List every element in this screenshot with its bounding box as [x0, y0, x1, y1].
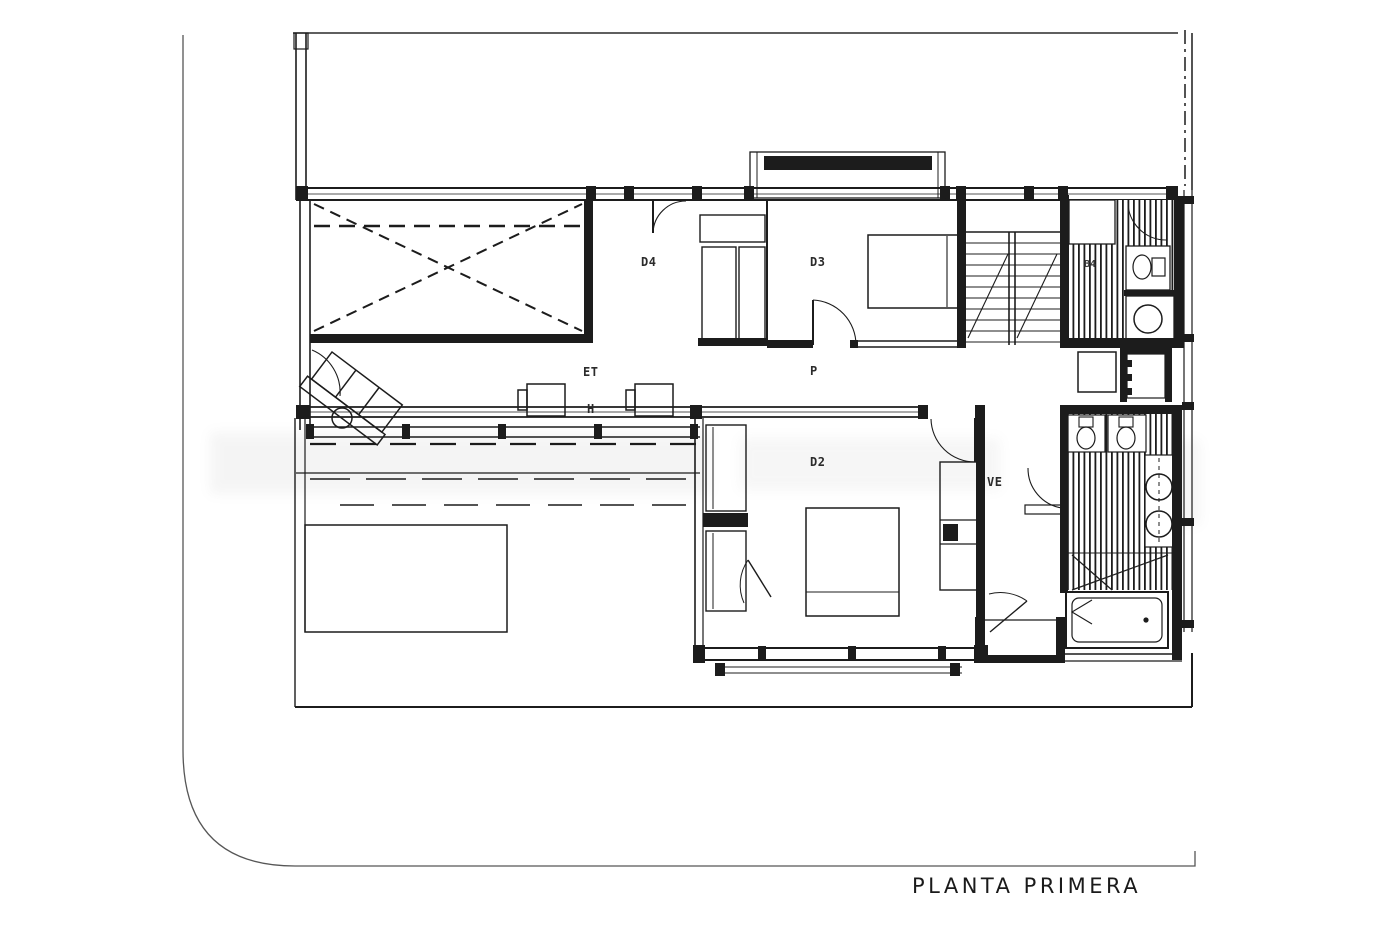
wardrobe — [739, 247, 765, 339]
entry-door-arc — [989, 593, 1027, 601]
void-room — [300, 200, 593, 430]
room-d4 — [653, 200, 768, 346]
bed-d3 — [868, 235, 960, 308]
door-arc-ve — [1028, 468, 1062, 508]
closet-door-arc — [740, 560, 748, 603]
corridor — [296, 346, 1172, 445]
watermark — [210, 432, 1200, 525]
west-wall-upper — [294, 33, 308, 200]
toilet — [1108, 415, 1146, 452]
room-d3-label: D3 — [810, 255, 825, 269]
wardrobe — [702, 247, 736, 339]
entry-box — [975, 617, 1065, 663]
lift-shaft — [1120, 346, 1172, 402]
east-facade — [1182, 190, 1194, 632]
balcony — [750, 152, 945, 198]
corridor-et-label: ET — [583, 365, 598, 379]
closet-door-leaf — [748, 560, 771, 597]
bath-lower — [1060, 405, 1182, 661]
stool-square — [518, 384, 565, 416]
stool-square — [626, 384, 673, 416]
duct-box — [1078, 352, 1116, 392]
vestibule — [975, 468, 1065, 663]
room-d4-label: D4 — [641, 255, 656, 269]
bath-upper-label: B4 — [1084, 259, 1096, 270]
vestibule-label: VE — [987, 475, 1002, 489]
room-d3 — [767, 235, 960, 348]
bath-upper — [1062, 196, 1184, 348]
wardrobe — [706, 531, 746, 611]
corridor-p-label: P — [810, 364, 818, 378]
roof-terrace — [305, 525, 507, 632]
plan-title: PLANTA PRIMERA — [912, 874, 1141, 898]
entry-door-leaf — [990, 601, 1027, 632]
door-arc-d4 — [653, 201, 686, 233]
stair-break-line — [1017, 254, 1057, 338]
bed-d2 — [806, 508, 899, 616]
door-arc-d3 — [813, 300, 856, 345]
floor-plan-page: D4 D3 — [0, 0, 1400, 948]
corridor-h-label: H — [587, 402, 595, 416]
bathtub — [1066, 592, 1168, 648]
stair-break-line — [968, 254, 1008, 338]
staircase — [957, 195, 1069, 348]
toilet — [1068, 415, 1105, 452]
sofa — [300, 349, 406, 445]
room-d2-label: D2 — [810, 455, 825, 469]
floor-plan-drawing: D4 D3 — [0, 0, 1400, 948]
lot-line-right — [1185, 30, 1192, 190]
void-cross-dashed — [314, 204, 582, 331]
north-facade — [296, 186, 1178, 201]
